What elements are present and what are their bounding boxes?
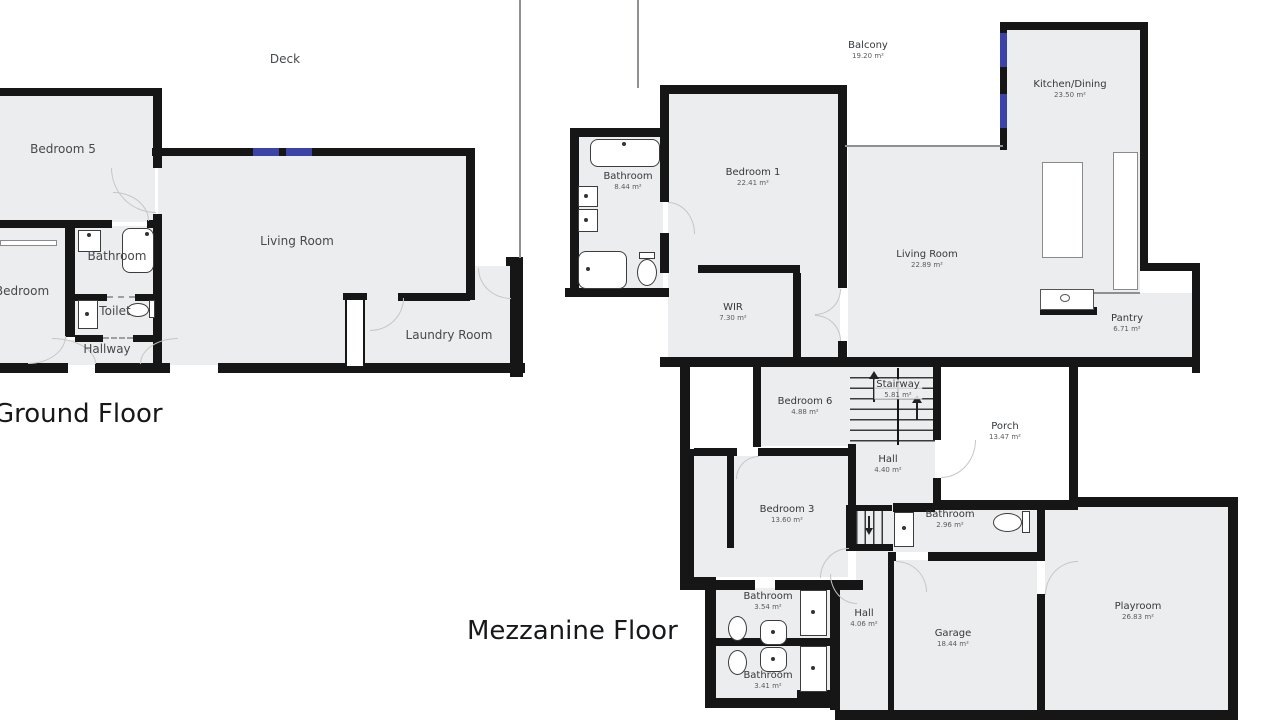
wall (1140, 22, 1148, 271)
balcony-door-line (845, 145, 1003, 147)
room-label-living-mezzanine: Living Room22.89 m² (896, 249, 957, 269)
door-knob-dot (902, 526, 906, 530)
room-label-wir: WIR7.30 m² (719, 302, 746, 322)
room-label-balcony: Balcony19.20 m² (848, 40, 888, 60)
wall (933, 360, 941, 440)
wall (835, 710, 1238, 720)
room-label-bedroom-left: Bedroom (0, 285, 49, 299)
drain-dot (771, 630, 775, 634)
wall (1000, 22, 1148, 30)
wall (698, 265, 800, 273)
wall (797, 583, 830, 590)
room-label-bathroom-ground: Bathroom (88, 250, 147, 264)
room-label-kitchen-dining: Kitchen/Dining23.50 m² (1033, 79, 1106, 99)
toilet (728, 616, 747, 641)
room-label-hall-lower: Hall4.06 m² (850, 608, 877, 628)
wall (343, 293, 367, 300)
floor-title-ground: Ground Floor (0, 399, 163, 429)
wall (133, 335, 160, 342)
toilet-tank (149, 300, 155, 318)
mini-stairs (856, 511, 890, 545)
wall (1192, 263, 1200, 373)
room-label-hall-upper: Hall4.40 m² (874, 454, 901, 474)
wall (850, 544, 893, 551)
sliding-door (103, 337, 133, 339)
wall (153, 88, 162, 168)
wall (95, 363, 170, 373)
room-label-deck: Deck (270, 53, 300, 67)
faucet-dot (584, 218, 588, 222)
wall (147, 220, 162, 228)
wall (565, 288, 669, 297)
room-label-stairway: Stairway5.81 m² (874, 379, 922, 399)
room-label-bathroom-lower: Bathroom3.41 m² (743, 670, 792, 690)
wall (660, 233, 669, 273)
room-label-hallway: Hallway (83, 343, 130, 357)
faucet-dot (145, 232, 149, 236)
wall (793, 273, 801, 360)
wall (680, 449, 694, 580)
wall-pillar (345, 300, 365, 366)
room-label-bedroom6: Bedroom 64.88 m² (778, 396, 833, 416)
wall (1078, 497, 1238, 507)
faucet-dot (87, 233, 91, 237)
wall (705, 582, 716, 708)
drain-dot (586, 267, 590, 271)
room-label-toilet: Toilet (99, 305, 130, 319)
floor-plan-canvas: Deck Bedroom 5 Living Room Bathroom Toil… (0, 0, 1280, 720)
wall (705, 698, 837, 708)
wall (398, 293, 470, 301)
window (1000, 33, 1007, 67)
counter-line (1094, 292, 1140, 294)
wall (660, 85, 845, 94)
faucet-dot (85, 312, 89, 316)
door-knob-dot (811, 666, 815, 670)
room-label-bathroom-upper: Bathroom3.54 m² (743, 591, 792, 611)
sink (578, 209, 598, 232)
wall (75, 335, 103, 342)
room-label-garage: Garage18.44 m² (935, 628, 972, 648)
wall (888, 560, 894, 713)
wall (838, 85, 847, 151)
wardrobe (0, 240, 57, 246)
wall (466, 148, 475, 300)
room-label-pantry: Pantry6.71 m² (1111, 313, 1143, 333)
wall (753, 365, 761, 447)
wall (680, 367, 690, 449)
wall (928, 552, 1045, 561)
wall (1228, 497, 1238, 715)
wall (838, 151, 847, 288)
faucet-dot (622, 142, 626, 146)
room-label-bathroom-main: Bathroom8.44 m² (603, 171, 652, 191)
wall (1140, 263, 1200, 271)
wall (846, 505, 852, 551)
wall (727, 456, 734, 548)
wall (830, 588, 840, 710)
wall (1037, 594, 1045, 715)
wall (758, 448, 856, 456)
toilet (993, 513, 1022, 532)
faucet-dot (584, 194, 588, 198)
wall (65, 220, 75, 337)
room-label-porch: Porch13.47 m² (989, 421, 1021, 441)
window (1000, 94, 1007, 128)
wall (660, 85, 669, 202)
room-label-bedroom5: Bedroom 5 (30, 143, 96, 157)
wall (0, 220, 112, 228)
floor-title-mezzanine: Mezzanine Floor (467, 616, 678, 646)
stair-arrow-head (869, 371, 879, 379)
window (253, 148, 279, 156)
wall (1069, 367, 1078, 507)
room-label-playroom: Playroom26.83 m² (1115, 601, 1162, 621)
kitchen-sink (1060, 294, 1070, 302)
room-label-laundry: Laundry Room (406, 329, 493, 343)
wall (660, 357, 1200, 367)
door-knob-dot (811, 610, 815, 614)
wall (135, 294, 160, 301)
stair-arrow (868, 516, 870, 528)
sliding-door (107, 296, 135, 298)
wall (694, 448, 737, 456)
wall (850, 505, 892, 511)
stair-arrow (916, 402, 918, 420)
wall (0, 88, 162, 96)
toilet (637, 259, 657, 286)
wall (510, 257, 523, 377)
toilet-tank (1022, 511, 1030, 533)
wall (218, 363, 525, 373)
balcony-boundary-line (637, 0, 639, 88)
door-arc (941, 440, 976, 478)
wall (570, 128, 665, 137)
window (286, 148, 312, 156)
wall (152, 148, 475, 156)
toilet-tank (639, 252, 655, 259)
room-label-bedroom3: Bedroom 313.60 m² (760, 504, 815, 524)
room-label-bedroom1: Bedroom 122.41 m² (726, 167, 781, 187)
kitchen-island (1042, 162, 1083, 258)
sink (578, 186, 598, 207)
deck-boundary-line (519, 0, 521, 258)
room-label-living-ground: Living Room (260, 235, 334, 249)
stair-arrow-head (865, 528, 873, 535)
drain-dot (771, 657, 775, 661)
wall (0, 363, 68, 373)
wall (797, 638, 830, 646)
kitchen-counter (1113, 152, 1138, 290)
room-label-bathroom-small: Bathroom2.96 m² (925, 509, 974, 529)
